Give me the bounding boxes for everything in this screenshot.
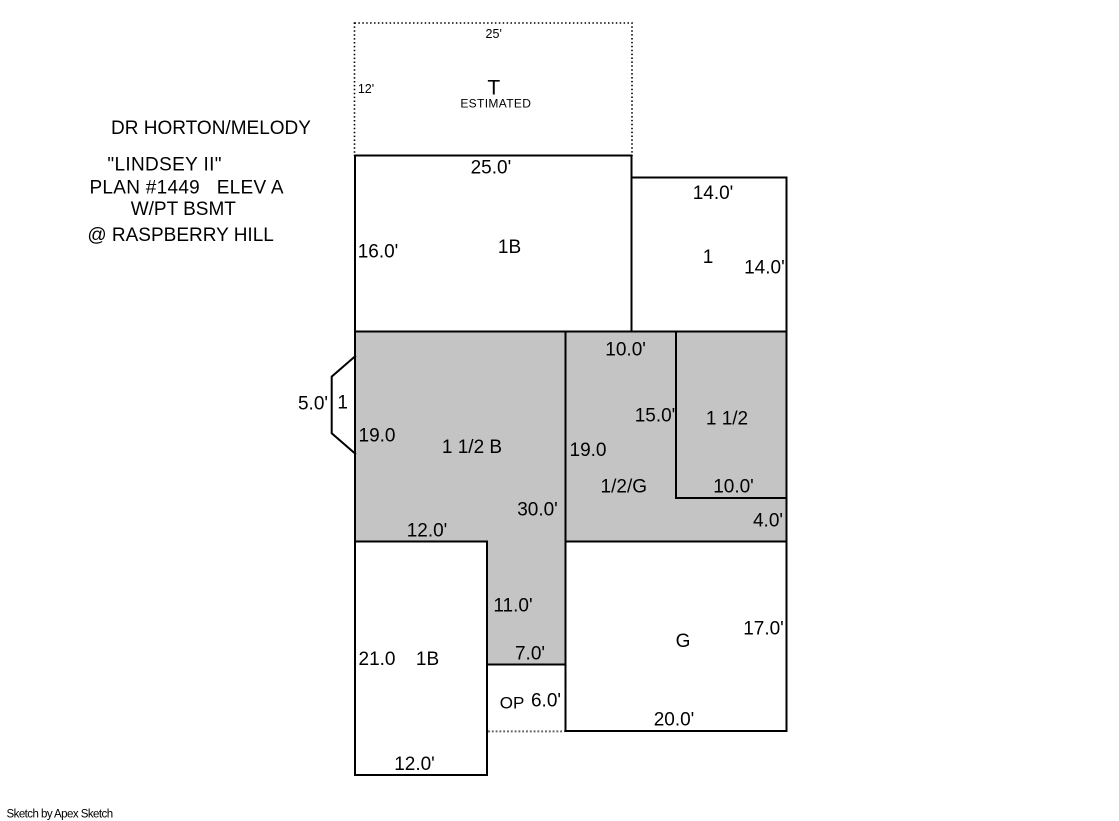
svg-text:10.0': 10.0' (605, 340, 646, 361)
svg-text:20.0': 20.0' (654, 710, 695, 731)
svg-text:W/PT BSMT: W/PT BSMT (131, 199, 237, 220)
svg-text:25.0': 25.0' (471, 158, 512, 179)
svg-text:1B: 1B (498, 237, 521, 258)
svg-text:@ RASPBERRY HILL: @ RASPBERRY HILL (87, 225, 274, 246)
svg-text:17.0': 17.0' (743, 619, 784, 640)
svg-text:11.0': 11.0' (493, 596, 532, 617)
svg-text:1B: 1B (416, 649, 439, 670)
svg-text:16.0': 16.0' (358, 242, 399, 263)
svg-text:12.0': 12.0' (394, 754, 435, 775)
svg-text:14.0': 14.0' (744, 258, 785, 279)
svg-text:1 1/2 B: 1 1/2 B (442, 437, 502, 458)
svg-text:PLAN #1449 ELEV A: PLAN #1449 ELEV A (89, 177, 283, 198)
svg-text:1 1/2: 1 1/2 (706, 409, 748, 430)
svg-text:6.0': 6.0' (531, 691, 561, 712)
svg-text:7.0': 7.0' (515, 644, 545, 665)
svg-text:12.0': 12.0' (407, 521, 448, 542)
svg-text:1: 1 (703, 247, 714, 268)
svg-text:30.0': 30.0' (517, 499, 558, 520)
svg-text:10.0': 10.0' (713, 477, 754, 498)
svg-text:Sketch by Apex Sketch: Sketch by Apex Sketch (7, 809, 113, 821)
svg-text:15.0': 15.0' (635, 406, 676, 427)
svg-text:4.0': 4.0' (753, 511, 783, 532)
svg-text:1/2/G: 1/2/G (601, 476, 647, 497)
svg-text:DR HORTON/MELODY: DR HORTON/MELODY (111, 118, 311, 139)
svg-text:21.0: 21.0 (359, 649, 396, 670)
svg-text:19.0: 19.0 (570, 440, 607, 461)
svg-text:"LINDSEY II": "LINDSEY II" (107, 155, 222, 176)
svg-text:ESTIMATED: ESTIMATED (460, 96, 531, 110)
svg-text:19.0: 19.0 (359, 426, 396, 447)
svg-text:1: 1 (337, 393, 348, 414)
svg-text:14.0': 14.0' (693, 183, 734, 204)
svg-text:25': 25' (486, 27, 502, 41)
svg-text:G: G (676, 631, 691, 652)
svg-text:12': 12' (358, 82, 374, 96)
svg-text:5.0': 5.0' (298, 394, 328, 415)
svg-text:OP: OP (500, 694, 525, 713)
